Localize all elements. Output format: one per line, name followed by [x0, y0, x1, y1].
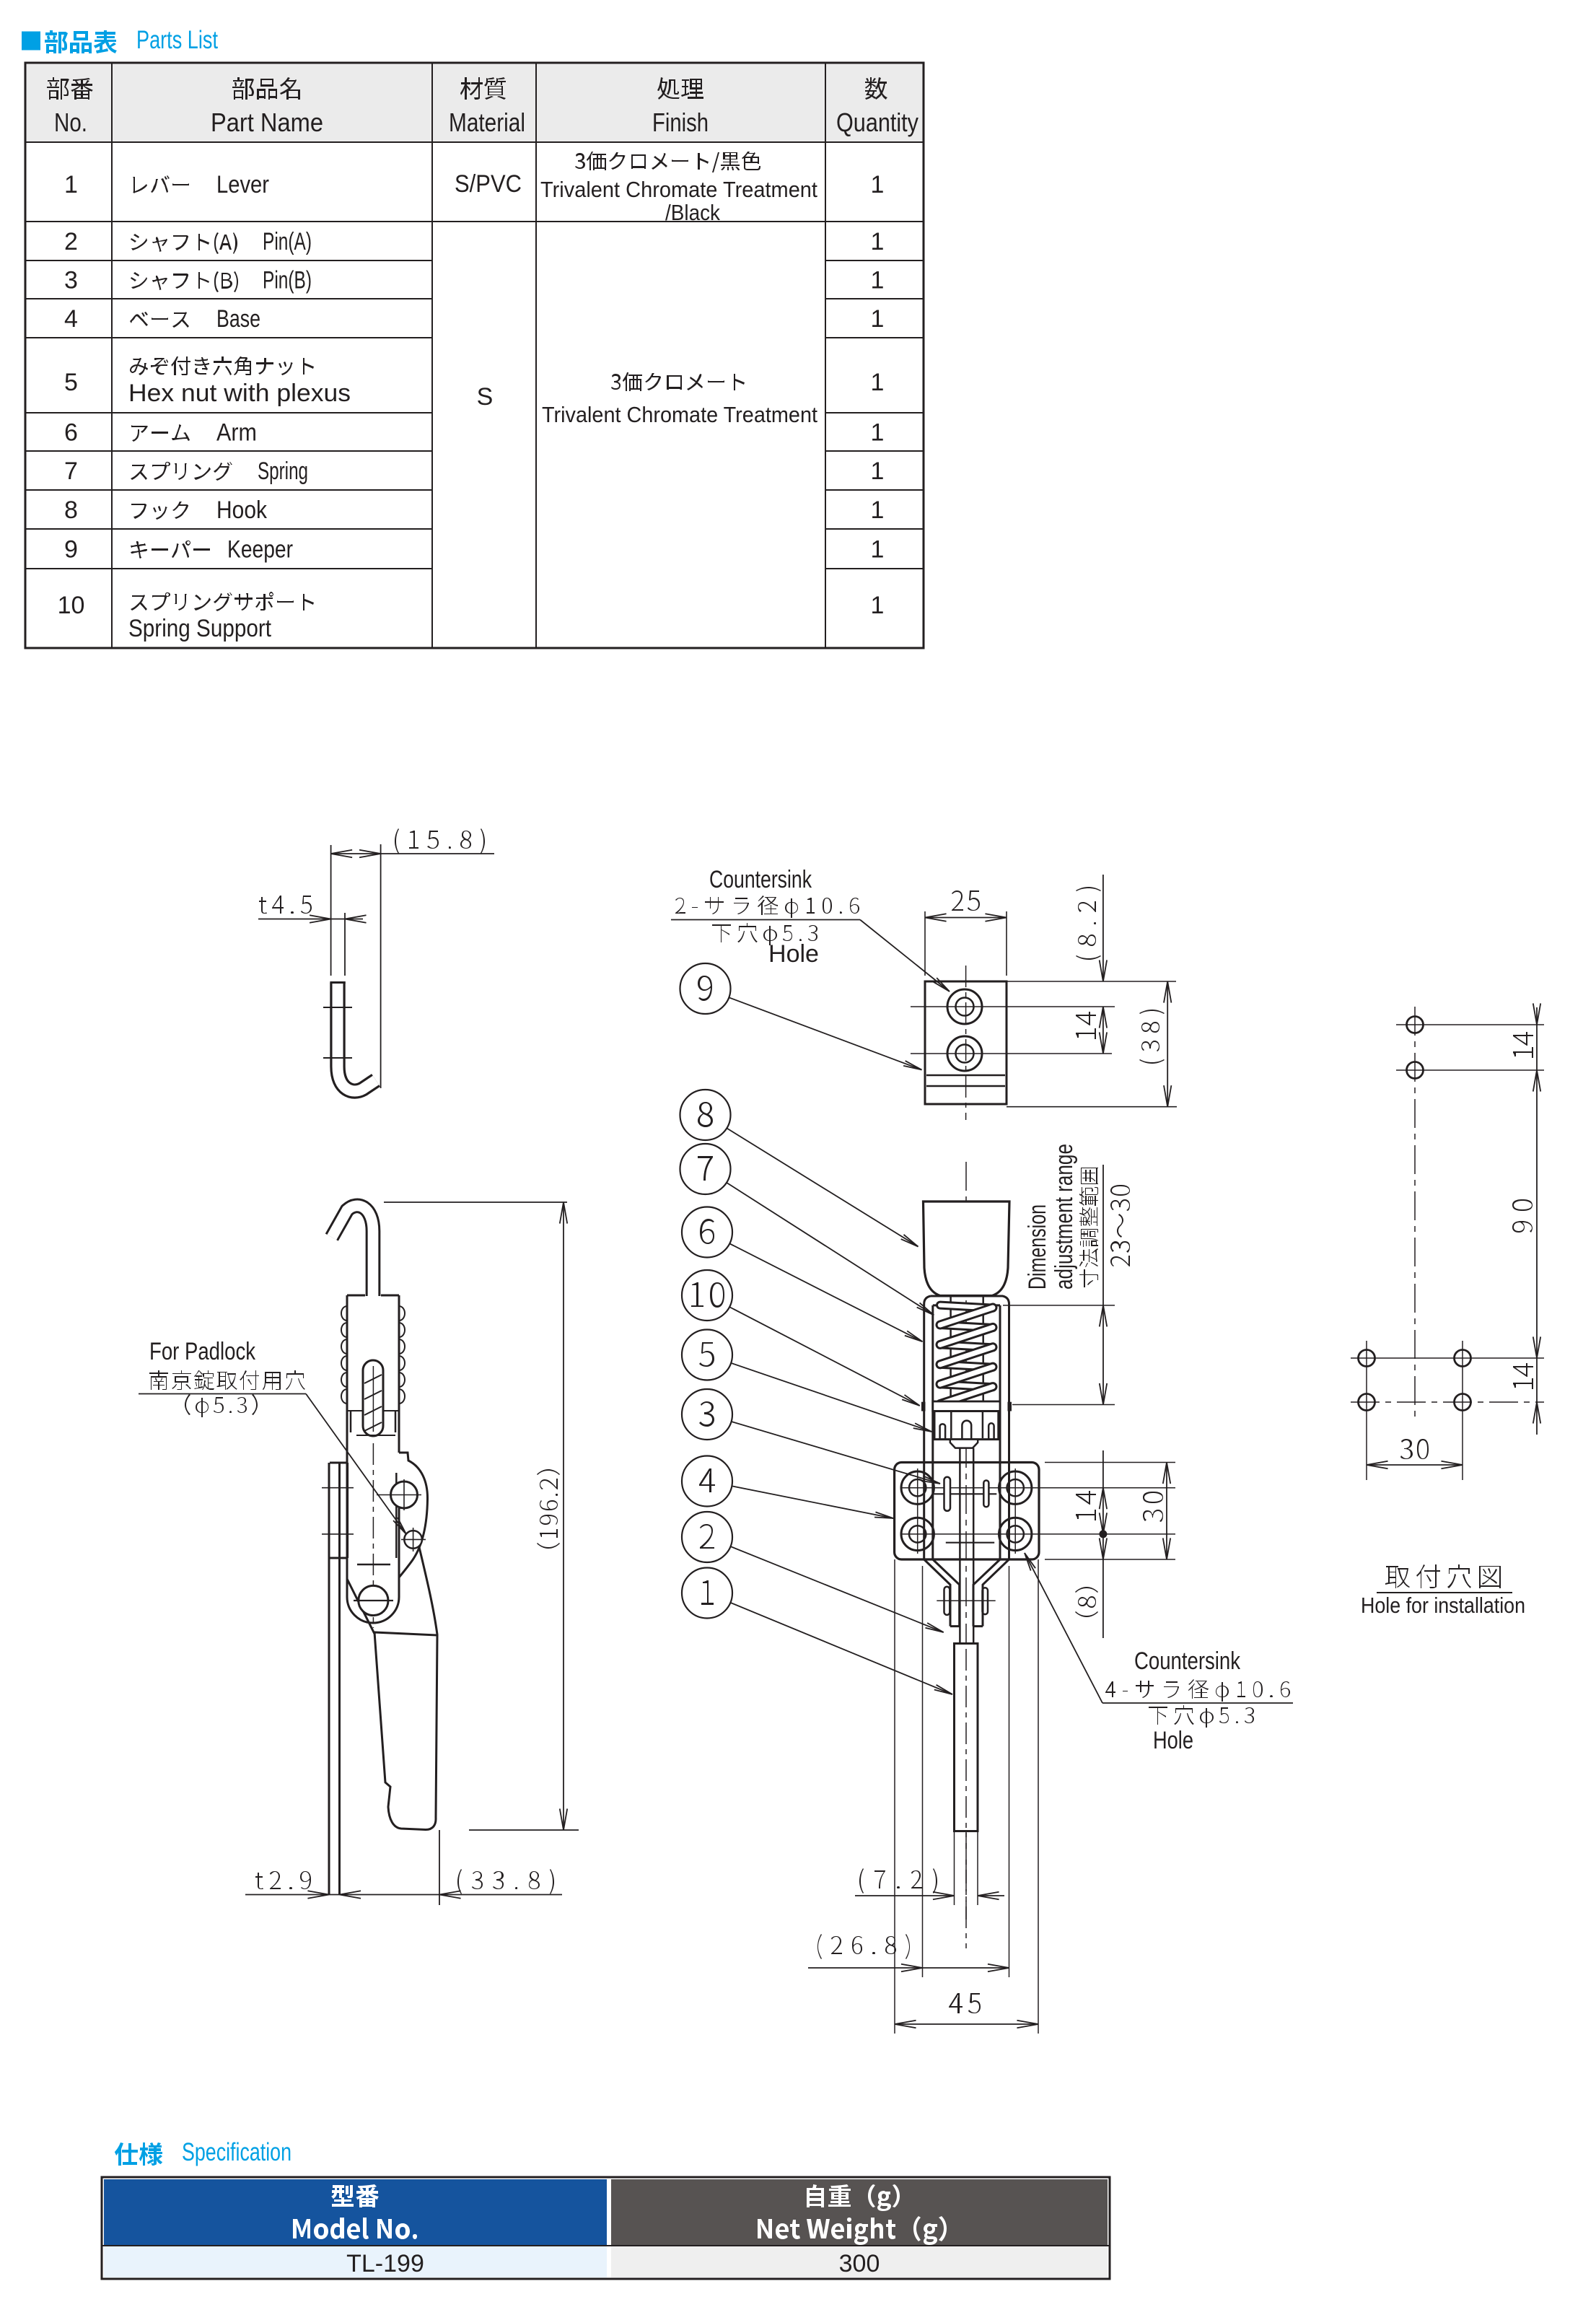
- svg-text:6: 6: [64, 419, 78, 447]
- svg-text:1: 1: [871, 592, 885, 619]
- svg-text:1: 1: [64, 171, 78, 198]
- svg-text:Countersink: Countersink: [1134, 1647, 1241, 1675]
- svg-text:Parts List: Parts List: [136, 26, 218, 54]
- svg-text:Spring: Spring: [258, 458, 308, 485]
- svg-text:Pin(A): Pin(A): [263, 228, 312, 255]
- svg-text:2: 2: [64, 228, 78, 255]
- svg-text:Hook: Hook: [216, 496, 268, 524]
- svg-text:8: 8: [64, 496, 78, 524]
- svg-text:Spring Support: Spring Support: [128, 615, 271, 642]
- svg-text:7: 7: [64, 458, 78, 485]
- svg-text:S: S: [477, 383, 494, 411]
- svg-text:Material: Material: [449, 108, 525, 137]
- svg-text:For Padlock: For Padlock: [149, 1338, 256, 1365]
- svg-text:3: 3: [64, 267, 78, 294]
- svg-text:10: 10: [58, 592, 85, 619]
- svg-text:4: 4: [64, 305, 78, 333]
- svg-text:Countersink: Countersink: [709, 866, 812, 893]
- svg-text:1: 1: [871, 458, 885, 485]
- svg-text:Base: Base: [216, 305, 260, 333]
- svg-text:Arm: Arm: [216, 419, 257, 447]
- svg-text:/Black: /Black: [665, 200, 720, 225]
- svg-text:TL-199: TL-199: [346, 2250, 424, 2277]
- svg-text:Specification: Specification: [182, 2138, 291, 2166]
- svg-text:1: 1: [871, 536, 885, 564]
- svg-text:Hole: Hole: [1153, 1727, 1193, 1754]
- svg-text:Lever: Lever: [216, 171, 269, 198]
- svg-text:Trivalent Chromate Treatment: Trivalent Chromate Treatment: [542, 402, 817, 427]
- svg-text:Part Name: Part Name: [211, 108, 323, 137]
- svg-text:1: 1: [871, 419, 885, 447]
- svg-text:Trivalent Chromate Treatment: Trivalent Chromate Treatment: [540, 177, 817, 202]
- svg-text:Keeper: Keeper: [227, 536, 293, 564]
- svg-text:1: 1: [871, 171, 885, 198]
- svg-text:300: 300: [839, 2250, 880, 2277]
- svg-text:Hole for installation: Hole for installation: [1361, 1593, 1525, 1618]
- svg-text:S/PVC: S/PVC: [455, 170, 522, 198]
- svg-text:Hole: Hole: [768, 940, 819, 968]
- svg-text:Finish: Finish: [652, 108, 709, 137]
- svg-text:1: 1: [871, 267, 885, 294]
- svg-text:1: 1: [871, 228, 885, 255]
- svg-text:Dimension: Dimension: [1024, 1204, 1051, 1290]
- svg-text:adjustment range: adjustment range: [1051, 1144, 1078, 1290]
- svg-text:1: 1: [871, 496, 885, 524]
- svg-text:Pin(B): Pin(B): [263, 267, 312, 294]
- svg-text:Hex nut with plexus: Hex nut with plexus: [128, 380, 351, 407]
- svg-text:No.: No.: [54, 108, 87, 137]
- svg-text:9: 9: [64, 536, 78, 564]
- svg-text:1: 1: [871, 369, 885, 396]
- svg-text:Quantity: Quantity: [836, 108, 918, 137]
- svg-text:1: 1: [871, 305, 885, 333]
- svg-text:5: 5: [64, 369, 78, 396]
